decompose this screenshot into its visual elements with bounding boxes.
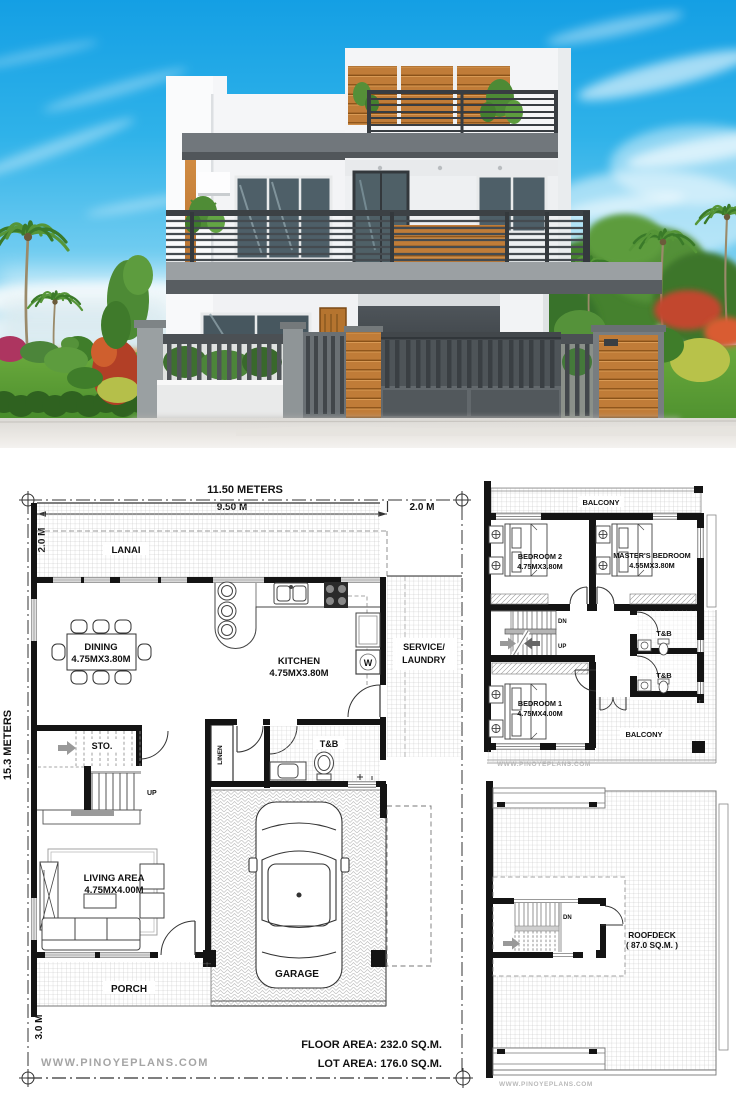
svg-text:T&B: T&B bbox=[656, 629, 672, 638]
svg-text:WWW.PINOYEPLANS.COM: WWW.PINOYEPLANS.COM bbox=[41, 1057, 209, 1069]
svg-text:FLOOR AREA: 232.0 SQ.M.: FLOOR AREA: 232.0 SQ.M. bbox=[301, 1039, 442, 1051]
svg-text:DINING: DINING bbox=[84, 642, 117, 653]
svg-text:15.3 METERS: 15.3 METERS bbox=[2, 710, 14, 780]
svg-text:2.0 M: 2.0 M bbox=[409, 502, 434, 513]
svg-text:BALCONY: BALCONY bbox=[625, 730, 662, 739]
svg-text:GARAGE: GARAGE bbox=[275, 969, 319, 980]
svg-text:4.75MX3.80M: 4.75MX3.80M bbox=[517, 562, 562, 571]
svg-text:KITCHEN: KITCHEN bbox=[278, 656, 320, 667]
svg-text:LAUNDRY: LAUNDRY bbox=[402, 655, 446, 665]
svg-text:4.75MX3.80M: 4.75MX3.80M bbox=[71, 654, 130, 665]
svg-text:MASTER'S BEDROOM: MASTER'S BEDROOM bbox=[613, 551, 691, 560]
svg-text:UP: UP bbox=[558, 644, 566, 650]
svg-text:LANAI: LANAI bbox=[111, 545, 140, 556]
svg-text:T&B: T&B bbox=[320, 739, 339, 749]
svg-text:LOT AREA: 176.0 SQ.M.: LOT AREA: 176.0 SQ.M. bbox=[318, 1058, 442, 1070]
svg-text:( 87.0 SQ.M. ): ( 87.0 SQ.M. ) bbox=[626, 940, 678, 950]
svg-text:4.75MX4.00M: 4.75MX4.00M bbox=[517, 709, 562, 718]
svg-text:SERVICE/: SERVICE/ bbox=[403, 642, 445, 652]
svg-text:LINEN: LINEN bbox=[217, 745, 224, 765]
svg-text:LIVING AREA: LIVING AREA bbox=[84, 873, 145, 884]
svg-text:ROOFDECK: ROOFDECK bbox=[628, 930, 675, 940]
svg-text:STO.: STO. bbox=[92, 741, 113, 751]
svg-text:4.75MX4.00M: 4.75MX4.00M bbox=[84, 885, 143, 896]
svg-text:BALCONY: BALCONY bbox=[582, 498, 619, 507]
svg-text:11.50 METERS: 11.50 METERS bbox=[207, 484, 283, 496]
svg-text:WWW.PINOYEPLANS.COM: WWW.PINOYEPLANS.COM bbox=[497, 761, 591, 768]
svg-text:UP: UP bbox=[147, 790, 157, 797]
svg-text:DN: DN bbox=[558, 619, 567, 625]
svg-text:4.75MX3.80M: 4.75MX3.80M bbox=[269, 668, 328, 679]
svg-text:BEDROOM 1: BEDROOM 1 bbox=[518, 699, 562, 708]
svg-text:PORCH: PORCH bbox=[111, 984, 147, 995]
svg-text:DN: DN bbox=[563, 915, 572, 921]
svg-text:BEDROOM 2: BEDROOM 2 bbox=[518, 552, 562, 561]
svg-text:W: W bbox=[364, 658, 373, 668]
svg-text:WWW.PINOYEPLANS.COM: WWW.PINOYEPLANS.COM bbox=[499, 1081, 593, 1088]
svg-text:3.0 M: 3.0 M bbox=[34, 1014, 45, 1039]
svg-text:4.55MX3.80M: 4.55MX3.80M bbox=[629, 561, 674, 570]
